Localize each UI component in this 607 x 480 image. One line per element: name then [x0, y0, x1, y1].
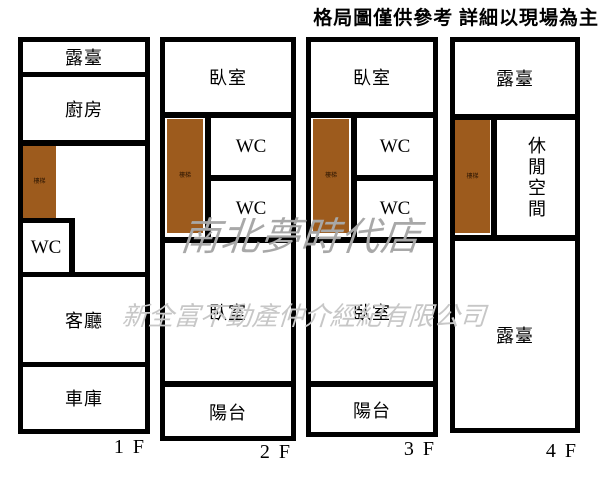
floor-plan-1f: 露臺 廚房 樓梯 WC 客廳 車庫 [18, 37, 150, 434]
room-wc-1f: WC [23, 218, 75, 272]
room-kitchen-1f: 廚房 [23, 77, 145, 140]
stairs-label: 樓梯 [33, 179, 45, 185]
stairs-label: 樓梯 [325, 173, 337, 179]
floor-label-4f: 4 F [534, 440, 578, 463]
floorplan-canvas: 格局圖僅供參考 詳細以現場為主 露臺 廚房 樓梯 WC 客廳 車庫 1 F 臥室 [0, 0, 607, 480]
watermark-company-name: 新全富不動產仲介經紀有限公司 [121, 296, 488, 333]
floor-label-3f: 3 F [392, 438, 436, 461]
room-label: WC [236, 136, 267, 158]
room-leisure-4f: 休閒空間 [497, 120, 575, 235]
room-label: 廚房 [65, 96, 103, 122]
floor-label-2f: 2 F [248, 441, 292, 464]
room-label: 露臺 [496, 65, 534, 91]
disclaimer-text: 格局圖僅供參考 詳細以現場為主 [313, 3, 599, 30]
stairs-label: 樓梯 [179, 173, 191, 179]
room-label: 臥室 [209, 64, 247, 90]
room-label: 客廳 [65, 307, 103, 333]
watermark-store-name: 南北夢時代店 [178, 206, 424, 262]
floor-label-1f: 1 F [102, 436, 146, 459]
room-label: WC [31, 237, 62, 259]
room-wc-upper-2f: WC [211, 118, 291, 175]
room-garage-1f: 車庫 [23, 367, 145, 429]
room-bedroom-top-2f: 臥室 [165, 42, 291, 112]
room-terrace-bottom-4f: 露臺 [455, 241, 575, 428]
room-balcony-2f: 陽台 [165, 387, 291, 436]
room-balcony-3f: 陽台 [311, 387, 433, 432]
room-label: 臥室 [353, 64, 391, 90]
stairs-block: 樓梯 [23, 146, 56, 218]
room-label: 休閒空間 [527, 136, 545, 220]
room-bedroom-top-3f: 臥室 [311, 42, 433, 112]
floor-plan-4f: 露臺 樓梯 休閒空間 露臺 [450, 37, 580, 433]
room-label: WC [380, 136, 411, 158]
room-label: 陽台 [353, 397, 391, 423]
stairs-label: 樓梯 [466, 174, 478, 180]
room-terrace-1f: 露臺 [23, 42, 145, 72]
room-terrace-top-4f: 露臺 [455, 42, 575, 114]
room-label: 露臺 [496, 322, 534, 348]
room-wc-upper-3f: WC [357, 118, 433, 175]
stairs-block: 樓梯 [455, 120, 490, 233]
room-label: 露臺 [65, 44, 103, 70]
room-label: 車庫 [65, 385, 103, 411]
room-label: 陽台 [209, 399, 247, 425]
